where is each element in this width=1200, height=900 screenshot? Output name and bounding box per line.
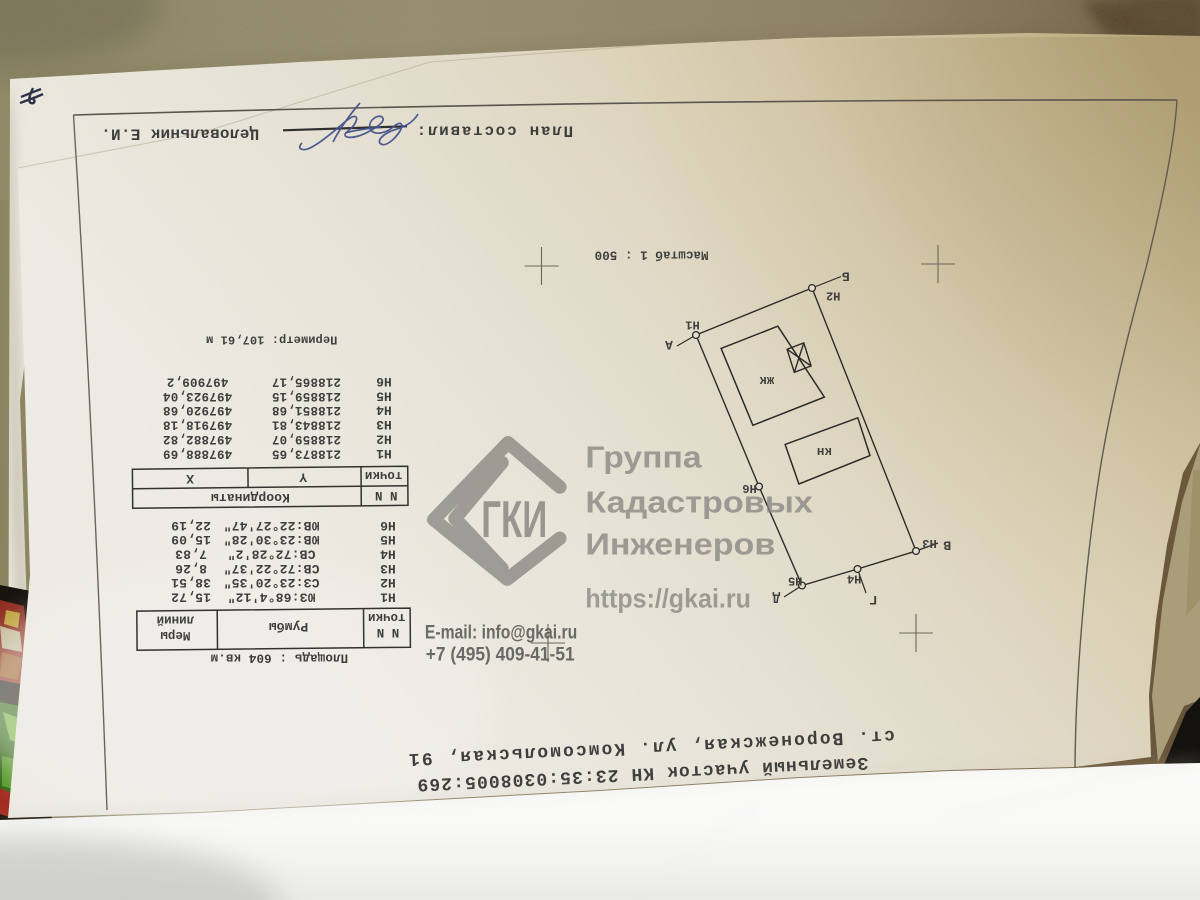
svg-text:Y: Y xyxy=(299,469,307,484)
svg-text:Н5: Н5 xyxy=(380,532,396,547)
svg-text:E-mail: info@gkai.ru: E-mail: info@gkai.ru xyxy=(425,622,577,643)
svg-text:Периметр: 107,61 м: Периметр: 107,61 м xyxy=(206,333,337,347)
svg-text:СВ:72°28'2": СВ:72°28'2" xyxy=(227,547,315,562)
svg-text:Н1: Н1 xyxy=(685,318,699,332)
svg-text:218843,81: 218843,81 xyxy=(272,418,341,432)
svg-text:Площадь : 604 кв.м: Площадь : 604 кв.м xyxy=(210,651,348,665)
svg-text:218859,07: 218859,07 xyxy=(272,432,341,446)
svg-text:Н4: Н4 xyxy=(380,547,396,562)
svg-text:Н6: Н6 xyxy=(376,374,392,389)
svg-text:Масштаб 1 : 500: Масштаб 1 : 500 xyxy=(594,248,708,263)
svg-text:ЮВ:23°30'28": ЮВ:23°30'28" xyxy=(223,532,319,547)
svg-text:точки: точки xyxy=(365,468,403,482)
svg-text:Н1: Н1 xyxy=(376,446,392,461)
svg-text:218873,65: 218873,65 xyxy=(272,446,341,460)
svg-text:Группа: Группа xyxy=(585,440,702,475)
svg-text:А: А xyxy=(665,337,673,352)
svg-text:СЗ:23°20'35": СЗ:23°20'35" xyxy=(223,575,319,590)
svg-text:Н2: Н2 xyxy=(376,431,392,446)
svg-text:точки: точки xyxy=(368,610,406,624)
svg-text:Целовальник Е.И.: Целовальник Е.И. xyxy=(101,125,259,143)
svg-text:X: X xyxy=(186,471,194,486)
svg-text:+7 (495) 409-41-51: +7 (495) 409-41-51 xyxy=(426,643,575,665)
svg-text:Н4: Н4 xyxy=(847,571,861,585)
svg-text:N N: N N xyxy=(375,488,398,502)
svg-text:15,72: 15,72 xyxy=(171,590,211,605)
svg-text:Румбы: Румбы xyxy=(269,619,309,634)
svg-text:Н6: Н6 xyxy=(380,518,396,533)
svg-text:Н3: Н3 xyxy=(380,561,396,576)
svg-text:218851,68: 218851,68 xyxy=(272,403,341,417)
svg-text:Н5: Н5 xyxy=(376,388,392,403)
svg-text:Кадастровых: Кадастровых xyxy=(585,485,813,520)
svg-text:Н5: Н5 xyxy=(788,574,802,588)
svg-text:Н2: Н2 xyxy=(826,289,840,303)
svg-text:https://gkai.ru: https://gkai.ru xyxy=(585,583,751,613)
svg-text:жк: жк xyxy=(759,373,775,387)
svg-text:кн: кн xyxy=(817,444,832,458)
svg-text:Н2: Н2 xyxy=(380,575,396,590)
svg-text:План составил:: План составил: xyxy=(415,121,573,139)
svg-text:497918,18: 497918,18 xyxy=(163,418,232,432)
svg-text:Н3: Н3 xyxy=(376,417,392,432)
svg-text:Г: Г xyxy=(869,592,877,607)
svg-text:Н1: Н1 xyxy=(380,590,396,605)
svg-text:линий: линий xyxy=(157,613,195,627)
svg-text:Н4: Н4 xyxy=(376,403,392,418)
svg-text:Меры: Меры xyxy=(160,628,190,642)
svg-text:22,19: 22,19 xyxy=(171,518,211,533)
svg-text:7,83: 7,83 xyxy=(175,547,207,562)
svg-text:497882,82: 497882,82 xyxy=(163,432,232,446)
svg-text:ЮВ:22°27'47": ЮВ:22°27'47" xyxy=(223,518,319,533)
svg-text:218859,15: 218859,15 xyxy=(272,389,341,403)
svg-text:ГКИ: ГКИ xyxy=(481,491,547,549)
svg-text:Инженеров: Инженеров xyxy=(585,526,775,561)
svg-text:8,26: 8,26 xyxy=(175,561,207,576)
svg-text:В: В xyxy=(943,538,951,553)
svg-text:Н3: Н3 xyxy=(922,536,936,550)
svg-text:38,51: 38,51 xyxy=(171,575,211,590)
svg-text:Д: Д xyxy=(772,590,780,605)
svg-text:Б: Б xyxy=(842,269,850,284)
svg-text:N N: N N xyxy=(377,625,400,639)
svg-text:ЮЗ:68°4'12": ЮЗ:68°4'12" xyxy=(227,590,315,605)
svg-text:СВ:72°22'37": СВ:72°22'37" xyxy=(223,561,319,576)
svg-text:218865,17: 218865,17 xyxy=(272,375,341,389)
svg-text:497888,69: 497888,69 xyxy=(163,446,232,460)
svg-text:497909,2: 497909,2 xyxy=(167,375,229,389)
svg-text:Координаты: Координаты xyxy=(211,490,290,505)
svg-text:497923,04: 497923,04 xyxy=(163,389,233,403)
svg-text:15,09: 15,09 xyxy=(171,532,211,547)
svg-text:497920,68: 497920,68 xyxy=(163,403,232,417)
